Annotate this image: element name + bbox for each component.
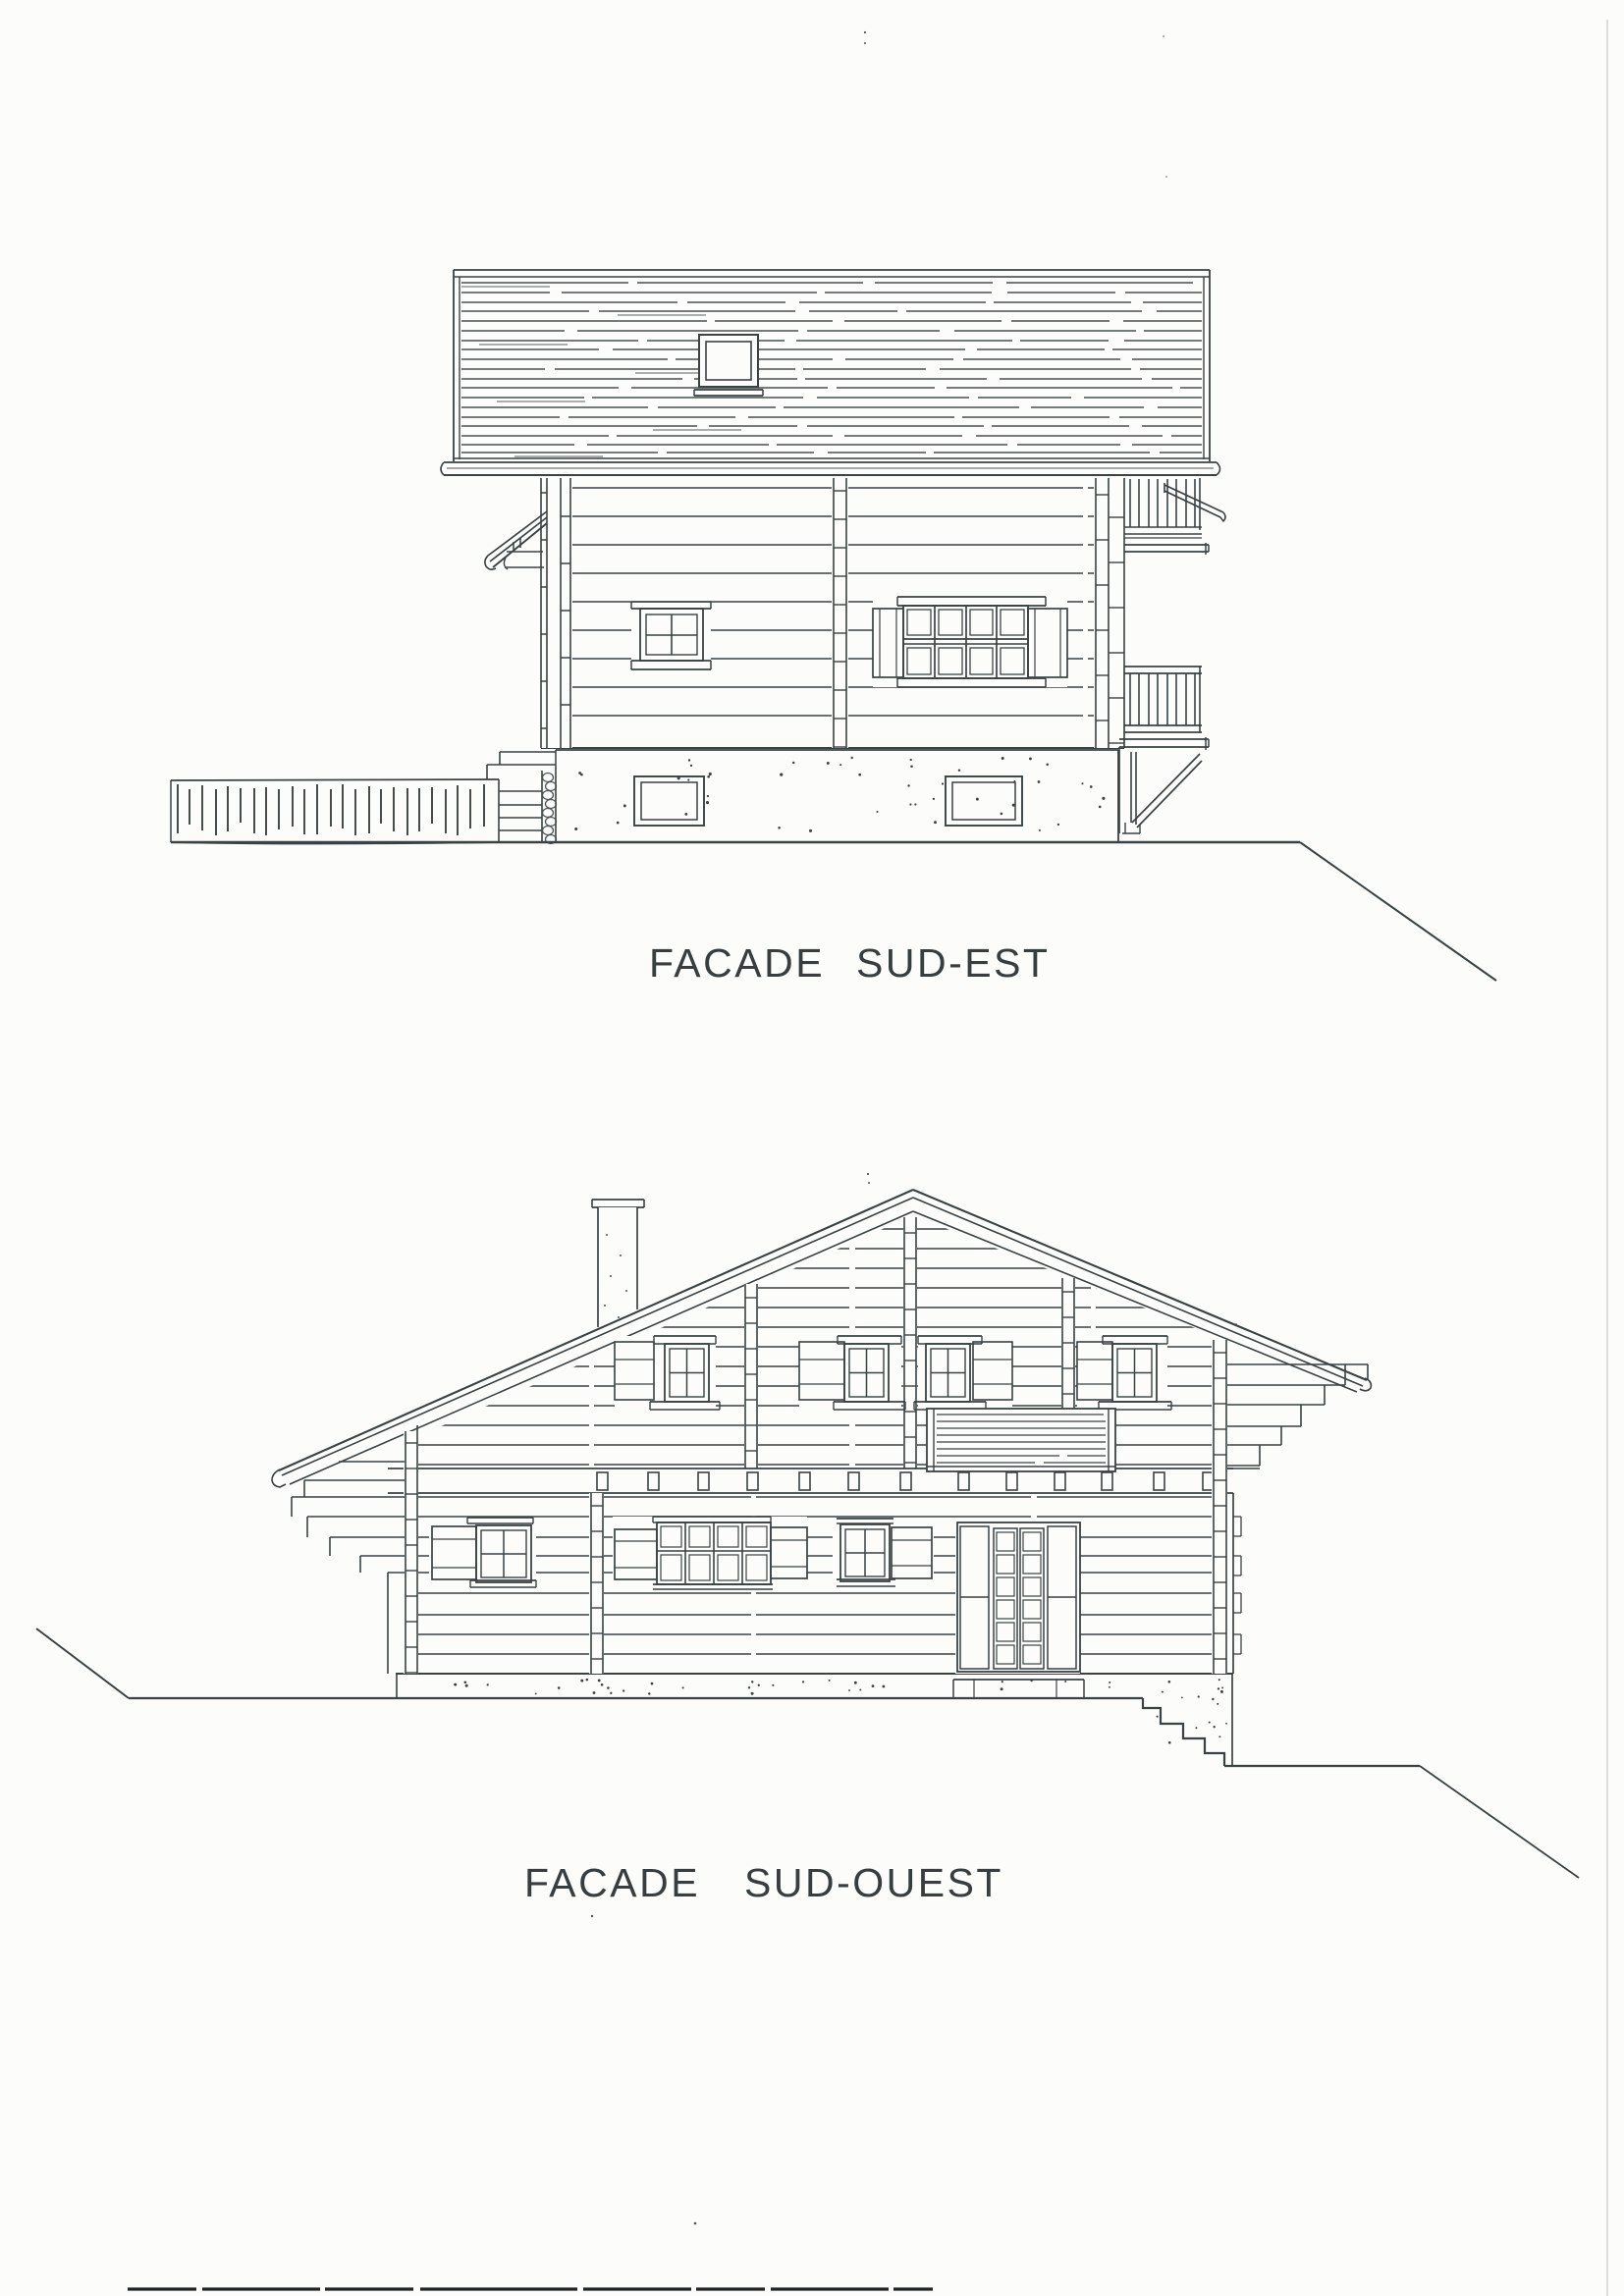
svg-text:FACADE: FACADE [649, 940, 825, 986]
svg-text:SUD-EST: SUD-EST [856, 940, 1050, 986]
svg-text:SUD-OUEST: SUD-OUEST [744, 1860, 1003, 1905]
svg-text:FACADE: FACADE [524, 1860, 700, 1905]
